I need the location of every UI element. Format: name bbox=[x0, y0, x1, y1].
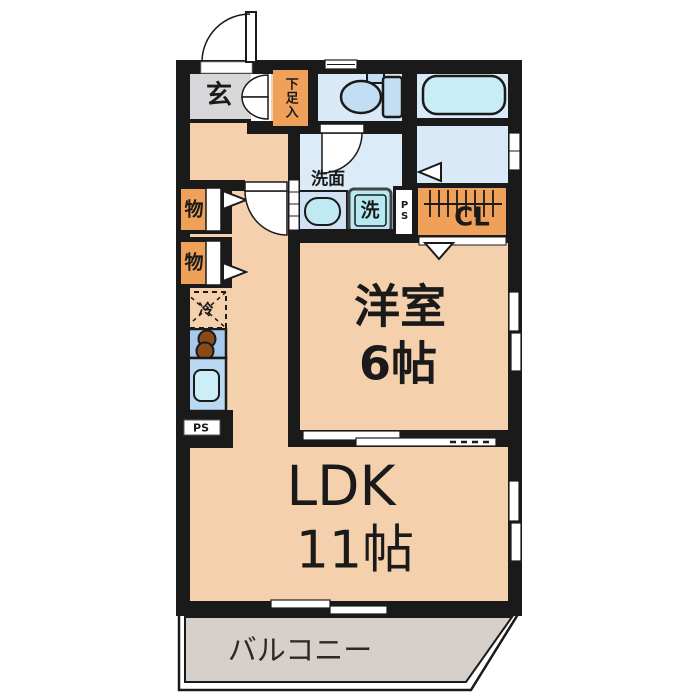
entrance-door bbox=[201, 12, 256, 73]
room-label-washroom: 洗面 bbox=[311, 171, 345, 188]
room-label-balcony: バルコニー bbox=[228, 636, 372, 666]
room-label-ldk: LDK bbox=[286, 458, 395, 514]
room-label-genkan: 玄 bbox=[206, 83, 232, 110]
label-ps-upper: PS bbox=[399, 200, 409, 222]
label-refrigerator: 冷 bbox=[198, 302, 213, 317]
label-washing-machine: 洗 bbox=[360, 201, 379, 220]
room-label-western: 洋室 bbox=[354, 284, 446, 331]
washbasin-icon bbox=[299, 191, 347, 231]
washroom-sliding-door bbox=[289, 180, 299, 230]
bathtub-icon bbox=[423, 76, 505, 114]
room-size-ldk: 11帖 bbox=[296, 524, 414, 577]
kitchen-stove-icon bbox=[186, 329, 226, 360]
label-storage-1: 物 bbox=[184, 200, 203, 219]
room-size-western: 6帖 bbox=[359, 341, 437, 388]
floorplan-canvas: 玄 下足入 洗面 洗 PS CL 物 物 冷 PS 洋室 6帖 LDK 11帖 … bbox=[0, 0, 700, 700]
kitchen-sink-icon bbox=[186, 358, 226, 411]
floorplan-drawing bbox=[0, 0, 700, 700]
room-label-shoe-storage: 下足入 bbox=[283, 77, 296, 119]
label-ps-kitchen: PS bbox=[193, 422, 209, 433]
label-storage-2: 物 bbox=[184, 253, 203, 272]
room-label-closet: CL bbox=[454, 205, 490, 232]
